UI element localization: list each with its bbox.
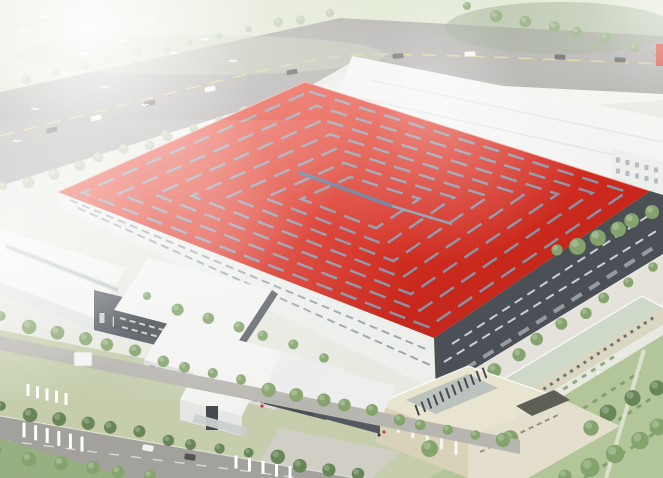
scene-canvas (0, 0, 663, 478)
global-mist (0, 0, 663, 478)
aerial-rendering (0, 0, 663, 478)
